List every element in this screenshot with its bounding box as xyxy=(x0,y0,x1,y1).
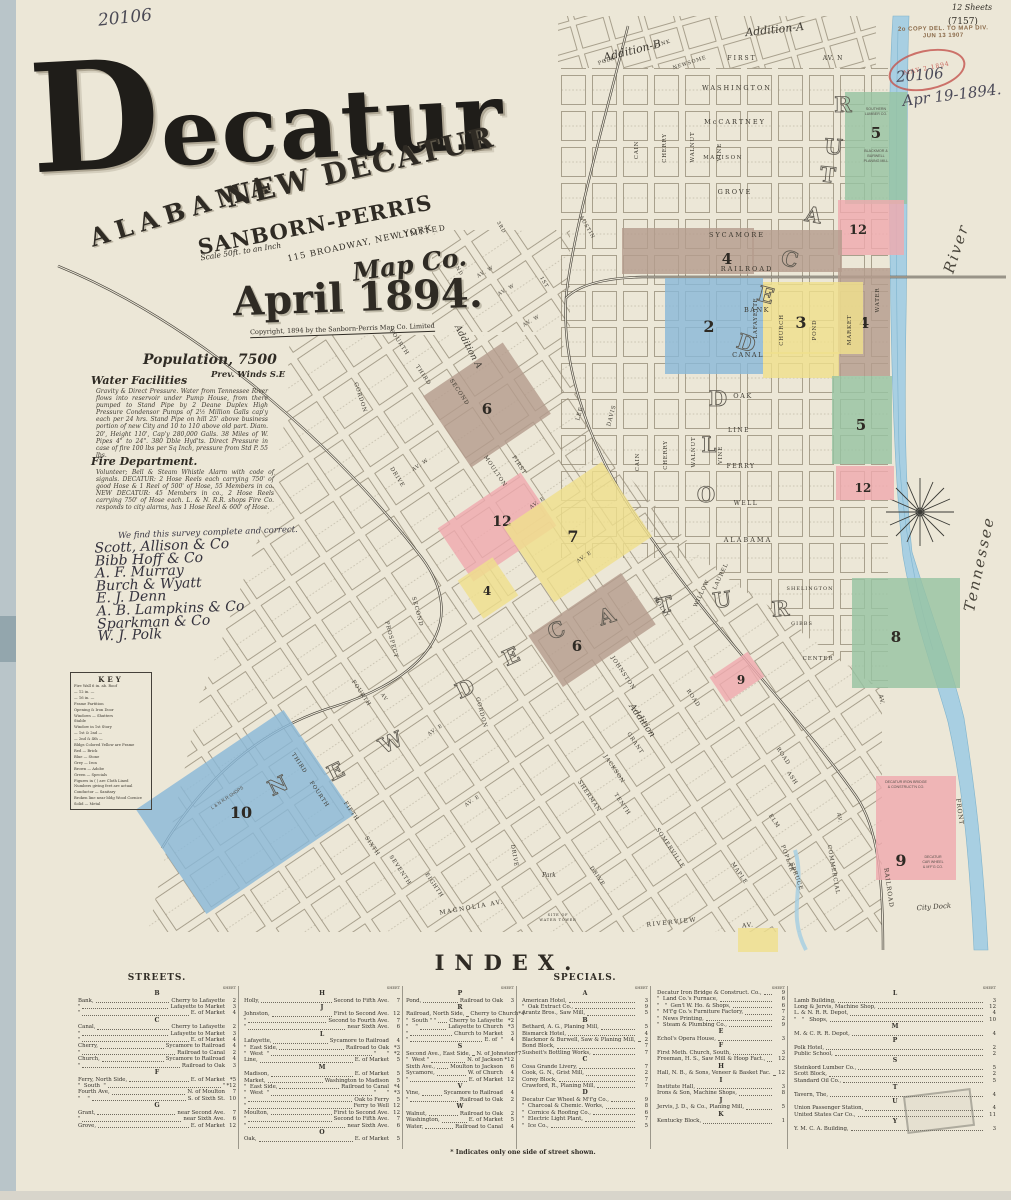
annotation-label: River xyxy=(940,222,973,277)
scan-edge-left xyxy=(0,0,16,1200)
dotted-leader xyxy=(261,1002,331,1003)
entry-sheet: 7 xyxy=(389,998,400,1004)
dotted-leader xyxy=(271,1095,372,1096)
entry-name: " West " xyxy=(244,1090,269,1096)
district-number: 9 xyxy=(737,673,745,687)
entry-range: E. of Market xyxy=(355,1057,389,1063)
index-letter: B xyxy=(78,990,236,998)
entry-sheet: 11 xyxy=(985,1112,996,1118)
street-label: POND xyxy=(812,320,818,341)
entry-range: Railroad to Oak xyxy=(460,1097,503,1103)
dotted-leader xyxy=(838,1002,983,1003)
street-label: CANAL xyxy=(732,351,764,359)
building-label: PLANING MILL xyxy=(864,159,889,163)
entry-range: near Sixth Ave. xyxy=(347,1024,389,1030)
dotted-leader xyxy=(773,1075,775,1076)
dotted-leader xyxy=(248,1101,352,1102)
street-label: WELL xyxy=(734,500,759,507)
index-footnote: * Indicates only one side of street show… xyxy=(388,1149,658,1156)
index-column: SHEETAAmerican Hotel,3" Oak Extract Co.,… xyxy=(522,990,648,1129)
dotted-leader xyxy=(273,1043,327,1044)
district-number: 10 xyxy=(230,803,252,822)
dotted-leader xyxy=(858,1069,983,1070)
street-label: GROVE xyxy=(718,188,753,196)
entry-sheet: 4 xyxy=(225,1010,236,1016)
dotted-leader xyxy=(593,1054,635,1055)
winds-note: Prev. Winds S.E xyxy=(211,370,285,380)
dotted-leader xyxy=(706,1020,772,1021)
entry-name: Standard Oil Co., xyxy=(794,1078,841,1084)
entry-name: " Steam & Plumbing Co., xyxy=(657,1022,727,1028)
dotted-leader xyxy=(410,1081,466,1082)
dotted-leader xyxy=(739,1095,772,1096)
scan-edge-notch xyxy=(0,616,16,662)
index-letter: A xyxy=(522,990,648,998)
index-letter: H xyxy=(657,1063,785,1071)
entry-name: " xyxy=(406,1037,408,1043)
entry-name: " xyxy=(78,1010,80,1016)
index-letter: I xyxy=(657,1077,785,1085)
entry-name: " Ice Co., xyxy=(522,1123,549,1129)
street-label: SHELINGTON xyxy=(787,586,834,592)
entry-name: Water, xyxy=(406,1124,423,1130)
entry-name: Church, xyxy=(78,1056,100,1062)
entry-sheet: 3 xyxy=(503,998,514,1004)
dotted-leader xyxy=(733,1054,772,1055)
building-label: SOUTHERN xyxy=(866,107,887,111)
entry-sheet: 12 xyxy=(503,1077,514,1083)
map-title-letter: U xyxy=(824,133,844,159)
entry-name: " xyxy=(406,1097,408,1103)
entry-range: near Sixth Ave. xyxy=(347,1123,389,1129)
index-letter: M xyxy=(794,1023,996,1031)
dotted-leader xyxy=(767,1061,772,1062)
index-letter: S xyxy=(406,1043,514,1051)
dotted-leader xyxy=(82,1067,179,1068)
entry-name: Moulton, xyxy=(244,1110,269,1116)
street-label: AV. xyxy=(741,921,754,929)
dotted-leader xyxy=(422,1095,442,1096)
sheet-label: SHEET xyxy=(983,985,996,991)
dotted-leader xyxy=(260,1062,353,1063)
street-label: CHERRY xyxy=(662,133,668,163)
scan-edge-bottom xyxy=(0,1191,1011,1200)
index-letter: D xyxy=(522,1089,648,1097)
district-number: 6 xyxy=(572,637,582,655)
entry-range: Railroad to Oak xyxy=(460,998,503,1004)
index-divider xyxy=(402,986,403,1149)
index-entry: Hall, N. B., & Sons, Veneer & Basket Fac… xyxy=(657,1070,785,1076)
sheet-label: SHEET xyxy=(387,985,400,991)
street-label: WATER xyxy=(875,288,881,313)
building-label: CAR WHEEL xyxy=(922,860,943,864)
entry-name: Holly, xyxy=(244,998,259,1004)
delivery-stamp: 2o COPY DEL. TO MAP DIV. JUN 13 1907 xyxy=(898,25,989,41)
entry-range: E. of Market xyxy=(191,1010,225,1016)
fire-department-title: Fire Department. xyxy=(91,455,197,468)
index-letter: K xyxy=(657,1111,785,1119)
district-number: 6 xyxy=(482,400,492,418)
sheet-label: SHEET xyxy=(501,985,514,991)
entry-name: Jervis, J. D., & Co., Planing Mill, xyxy=(657,1104,744,1110)
street-label: OAK xyxy=(733,392,752,400)
entry-range: Railroad to Canal xyxy=(455,1124,503,1130)
entry-name: Oak, xyxy=(244,1136,257,1142)
dotted-leader xyxy=(437,1068,448,1069)
dotted-leader xyxy=(102,1061,164,1062)
entry-name: Hall, N. B., & Sons, Veneer & Basket Fac… xyxy=(657,1070,771,1076)
dotted-leader xyxy=(601,1029,635,1030)
map-title-letter: O xyxy=(697,482,715,507)
street-label: CAIN xyxy=(635,453,641,471)
entry-sheet: 4 xyxy=(985,1092,996,1098)
map-title-letter: R xyxy=(771,595,791,621)
building-label: BURWELL xyxy=(867,154,884,158)
street-label: CAIN xyxy=(634,141,640,159)
water-facilities-title: Water Facilities xyxy=(91,374,187,387)
index-letter: E xyxy=(657,1028,785,1036)
entry-name: Freeman, H. S., Saw Mill & Hoop Fact., xyxy=(657,1056,765,1062)
street-label: WALNUT xyxy=(690,132,696,163)
dotted-leader xyxy=(830,1021,983,1022)
entry-name: Irons & Son, Machine Shops, xyxy=(657,1090,737,1096)
dotted-leader xyxy=(587,1015,635,1016)
entry-sheet: 10 xyxy=(985,1017,996,1023)
index-letter: P xyxy=(406,990,514,998)
key-row: Solid — Metal xyxy=(74,802,148,808)
map-key: KEY Fire Wall 6 in. ab. Roof— 12 in. —— … xyxy=(70,672,152,810)
dotted-leader xyxy=(733,1007,772,1008)
index-letter: J xyxy=(244,1004,400,1012)
index-divider xyxy=(238,986,239,1149)
street-label: SYCAMORE xyxy=(709,231,765,239)
dotted-leader xyxy=(437,1075,466,1076)
dotted-leader xyxy=(271,1055,372,1056)
entry-sheet: 3 xyxy=(225,1063,236,1069)
index-entry: Kentucky Block,1 xyxy=(657,1118,785,1124)
index-column: SHEETPPond,Railroad to Oak3RRailroad, No… xyxy=(406,990,514,1130)
street-label: MARKET xyxy=(847,315,853,345)
dotted-leader xyxy=(97,1114,175,1115)
sheet-label: SHEET xyxy=(772,985,785,991)
water-facilities-text: Gravity & Direct Pressure. Water from Te… xyxy=(96,388,268,459)
dotted-leader xyxy=(585,1121,635,1122)
dotted-leader xyxy=(248,1022,326,1023)
entry-name: Y. M. C. A. Building, xyxy=(794,1126,849,1132)
dotted-leader xyxy=(829,1076,983,1077)
dotted-leader xyxy=(697,1088,772,1089)
index-letter: L xyxy=(794,990,996,998)
district-block-12 xyxy=(838,200,904,255)
index-column: SHEETDecatur Iron Bridge & Construct. Co… xyxy=(657,990,785,1125)
entry-name: " " xyxy=(78,1096,90,1102)
map-title-letter: D xyxy=(709,386,727,411)
dotted-leader xyxy=(878,1008,983,1009)
street-label: MADISON xyxy=(703,155,743,161)
entry-sheet: 6 xyxy=(389,1024,400,1030)
entry-name: " xyxy=(406,1077,408,1083)
title-initial: D xyxy=(25,26,164,209)
dotted-leader xyxy=(268,1082,323,1083)
entry-name: Susheit's Bottling Works, xyxy=(522,1050,591,1056)
dotted-leader xyxy=(82,1035,168,1036)
district-block xyxy=(738,928,778,952)
annotation-label: Park xyxy=(541,872,556,879)
dotted-leader xyxy=(703,1123,772,1124)
dotted-leader xyxy=(720,1001,772,1002)
entry-name: Echol's Opera House, xyxy=(657,1036,716,1042)
index-letter: J xyxy=(657,1097,785,1105)
dotted-leader xyxy=(593,1114,635,1115)
dotted-leader xyxy=(82,1008,168,1009)
index-letter: W xyxy=(406,1103,514,1111)
dotted-leader xyxy=(575,1008,635,1009)
street-label: FERRY xyxy=(727,463,756,470)
dotted-leader xyxy=(850,1015,983,1016)
dotted-leader xyxy=(248,1127,345,1128)
entry-sheet: 5 xyxy=(637,1123,648,1129)
street-label: McCARTNEY xyxy=(704,118,766,126)
entry-sheet: 5 xyxy=(985,1078,996,1084)
entry-name: " xyxy=(244,1123,246,1129)
entry-name: Tavern, The, xyxy=(794,1092,828,1098)
entry-name: " xyxy=(78,1063,80,1069)
index-letter: B xyxy=(522,1017,648,1025)
signatures: Scott, Allison & CoBibb Hoff & CoA. F. M… xyxy=(94,537,245,643)
dotted-leader xyxy=(248,1108,351,1109)
entry-sheet: 12 xyxy=(774,1056,785,1062)
entry-sheet: 2 xyxy=(503,1097,514,1103)
compass-rose xyxy=(886,478,954,546)
map-title-letter: T xyxy=(819,161,838,188)
index-entry: Oak,E. of Market5 xyxy=(244,1136,400,1142)
district-block xyxy=(763,352,839,378)
dotted-leader xyxy=(559,1081,635,1082)
district-number: 5 xyxy=(856,416,866,434)
district-number: 8 xyxy=(891,628,901,646)
index-divider xyxy=(650,986,651,1149)
index-title: INDEX. xyxy=(378,950,638,975)
entry-sheet: 5 xyxy=(637,1010,648,1016)
annotation-label: City Dock xyxy=(916,902,951,912)
index-column: SHEETBBank,Cherry to Lafayette2"Lafayett… xyxy=(78,990,236,1129)
building-label: LUMBER CO. xyxy=(865,112,887,116)
index-letter: R xyxy=(406,1004,514,1012)
entry-sheet: 3 xyxy=(774,1036,785,1042)
dotted-leader xyxy=(745,1014,772,1015)
district-block-9 xyxy=(876,776,956,880)
index-letter: M xyxy=(244,1064,400,1072)
entry-range: E. of Market xyxy=(355,1136,389,1142)
index-letter: H xyxy=(244,990,400,998)
street-label: WALNUT xyxy=(691,437,697,468)
dotted-leader xyxy=(272,1016,332,1017)
dotted-leader xyxy=(279,1088,339,1089)
annotation-label: Tennessee xyxy=(960,515,998,614)
index-letter: V xyxy=(406,1083,514,1091)
dotted-leader xyxy=(729,1026,772,1027)
entry-range: Railroad to Oak xyxy=(182,1063,225,1069)
entry-sheet: 3 xyxy=(985,1126,996,1132)
entry-sheet: 12 xyxy=(225,1123,236,1129)
district-number: 5 xyxy=(871,124,881,142)
street-label: CHERRY xyxy=(663,440,669,470)
entry-sheet: 7 xyxy=(637,1083,648,1089)
dotted-leader xyxy=(835,1055,983,1056)
dotted-leader xyxy=(129,1081,189,1082)
index-entry: Grove,E. of Market12 xyxy=(78,1123,236,1129)
entry-sheet: 2 xyxy=(985,1051,996,1057)
entry-range: E. of Market xyxy=(469,1077,503,1083)
entry-range: E. of Market xyxy=(191,1077,225,1083)
entry-name: " xyxy=(244,1024,246,1030)
index-letter: G xyxy=(78,1102,236,1110)
dotted-leader xyxy=(82,1121,181,1122)
dotted-leader xyxy=(638,1041,640,1042)
entry-sheet: 4 xyxy=(503,1037,514,1043)
entry-name: United States Car Co., xyxy=(794,1112,856,1118)
entry-sheet: 7 xyxy=(637,1050,648,1056)
dotted-leader xyxy=(466,1016,468,1017)
street-label: RAILROAD xyxy=(721,265,774,273)
index-letter: C xyxy=(522,1056,648,1064)
entry-range: E. of " xyxy=(484,1037,503,1043)
dotted-leader xyxy=(96,1002,170,1003)
entry-name: " " Shops, xyxy=(794,1017,828,1023)
dotted-leader xyxy=(98,1127,189,1128)
dotted-leader xyxy=(843,1082,983,1083)
sanborn-map-sheet: { "handwritten": { "top_left_number": "2… xyxy=(0,0,1011,1200)
entry-sheet: 5 xyxy=(774,1104,785,1110)
dotted-leader xyxy=(852,1035,983,1036)
entry-sheet: 10 xyxy=(225,1096,236,1102)
key-rows: Fire Wall 6 in. ab. Roof— 12 in. —— 16 i… xyxy=(74,684,148,808)
dotted-leader xyxy=(472,1055,474,1056)
dotted-leader xyxy=(82,1015,188,1016)
dotted-leader xyxy=(271,1114,332,1115)
building-label: BLACKMOR & xyxy=(864,149,888,153)
building-label: DECATUR xyxy=(924,855,942,859)
dotted-leader xyxy=(764,994,772,995)
population-note: Population, 7500 xyxy=(143,352,277,368)
district-number: 9 xyxy=(895,851,906,870)
index-specials-header: SPECIALS. xyxy=(500,973,670,983)
dotted-leader xyxy=(425,1128,453,1129)
map-title-letter: L xyxy=(702,432,717,457)
index-letter: C xyxy=(78,1017,236,1025)
dotted-leader xyxy=(100,1048,164,1049)
dotted-leader xyxy=(97,1029,169,1030)
index-streets-header: STREETS. xyxy=(78,973,236,983)
dotted-leader xyxy=(569,1002,635,1003)
dotted-leader xyxy=(108,1087,221,1088)
district-number: 4 xyxy=(483,584,491,598)
dotted-leader xyxy=(410,1035,452,1036)
dotted-leader xyxy=(557,1048,635,1049)
street-label: GIBBS xyxy=(791,621,813,627)
index-letter: F xyxy=(657,1042,785,1050)
index-divider xyxy=(516,986,517,1149)
dotted-leader xyxy=(248,1121,331,1122)
map-date: April 1894. xyxy=(232,270,483,326)
entry-name: M. & C. R. R. Depot, xyxy=(794,1031,850,1037)
sheet-label: SHEET xyxy=(635,985,648,991)
entry-name: Public School, xyxy=(794,1051,833,1057)
district-number: 3 xyxy=(795,313,806,332)
dotted-leader xyxy=(420,1029,446,1030)
dotted-leader xyxy=(410,1101,457,1102)
entry-sheet: 9 xyxy=(774,1022,785,1028)
entry-sheet: 4 xyxy=(985,1031,996,1037)
entry-sheet: 5 xyxy=(389,1057,400,1063)
dotted-leader xyxy=(611,1101,635,1102)
entry-range: E. of Market xyxy=(191,1123,225,1129)
entry-sheet: 5 xyxy=(389,1136,400,1142)
index-letter: O xyxy=(244,1129,400,1137)
dotted-leader xyxy=(586,1075,635,1076)
index-divider xyxy=(787,986,788,1149)
fire-department-text: Volunteer; Bell & Steam Whistle Alarm wi… xyxy=(96,469,274,512)
entry-name: Cherry, xyxy=(78,1043,98,1049)
entry-sheet: 4 xyxy=(503,1124,514,1130)
entry-name: Sycamore, xyxy=(406,1070,435,1076)
dotted-leader xyxy=(431,1062,465,1063)
dotted-leader xyxy=(271,1076,353,1077)
entry-range: Second to Fifth Ave. xyxy=(334,998,389,1004)
entry-name: Line, xyxy=(244,1057,258,1063)
entry-sheet: 6 xyxy=(389,1123,400,1129)
district-number: 2 xyxy=(703,317,714,336)
dotted-leader xyxy=(82,1041,188,1042)
district-number: 12 xyxy=(849,223,867,238)
index-letter: F xyxy=(78,1069,236,1077)
street-label: FIRST xyxy=(727,55,756,62)
entry-sheet: 1 xyxy=(774,1118,785,1124)
street-label: CHURCH xyxy=(779,314,785,346)
sheets-note: 12 Sheets xyxy=(952,3,992,12)
entry-range: S. of Sixth St. xyxy=(188,1096,225,1102)
entry-name: Canal, xyxy=(78,1024,95,1030)
index-entry: " Ice Co.,5 xyxy=(522,1123,648,1129)
entry-name: Kentucky Block, xyxy=(657,1118,701,1124)
entry-name: Arantz Bros., Saw Mill, xyxy=(522,1010,585,1016)
street-label: CENTER xyxy=(803,656,834,662)
entry-sheet: 12 xyxy=(777,1070,785,1076)
index-letter: P xyxy=(794,1037,996,1045)
building-label: & M'F'G CO. xyxy=(923,865,943,869)
dotted-leader xyxy=(606,1108,635,1109)
district-number: 7 xyxy=(567,527,578,546)
index-column: SHEETHHolly,Second to Fifth Ave.7JJohnst… xyxy=(244,990,400,1143)
entry-name: Johnston, xyxy=(244,1011,270,1017)
street-label: WATER TOWER xyxy=(539,918,576,922)
key-title: KEY xyxy=(74,675,148,684)
dotted-leader xyxy=(826,1049,983,1050)
dotted-leader xyxy=(551,1127,635,1128)
dotted-leader xyxy=(438,1022,447,1023)
street-label: LAFAYETTE xyxy=(753,297,759,338)
entry-sheet: 8 xyxy=(774,1090,785,1096)
sheet-label: SHEET xyxy=(223,985,236,991)
entry-name: Pond, xyxy=(406,998,421,1004)
dotted-leader xyxy=(259,1141,353,1142)
dotted-leader xyxy=(718,1040,772,1041)
street-label: LINE xyxy=(728,427,750,434)
dotted-leader xyxy=(568,1035,635,1036)
index-letter: S xyxy=(794,1057,996,1065)
street-label: VINE xyxy=(718,446,724,465)
dotted-leader xyxy=(92,1100,186,1101)
